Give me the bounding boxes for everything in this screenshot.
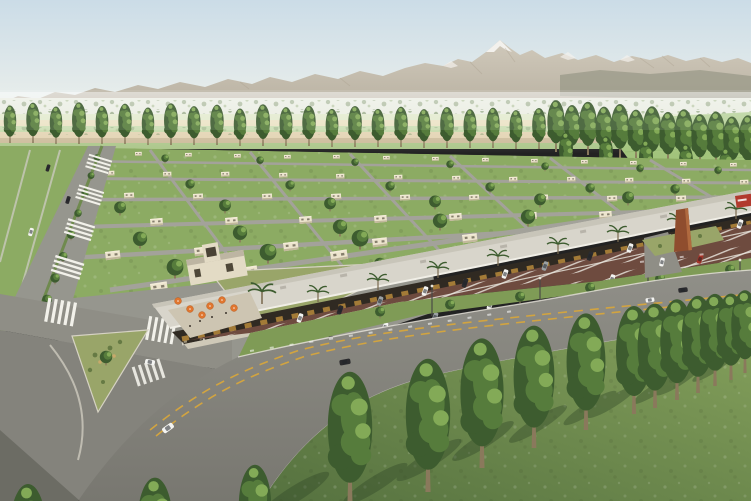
project-sign bbox=[735, 194, 751, 208]
scene-canvas bbox=[0, 0, 751, 501]
aerial-render bbox=[0, 0, 751, 501]
atmosphere-haze bbox=[0, 90, 751, 130]
